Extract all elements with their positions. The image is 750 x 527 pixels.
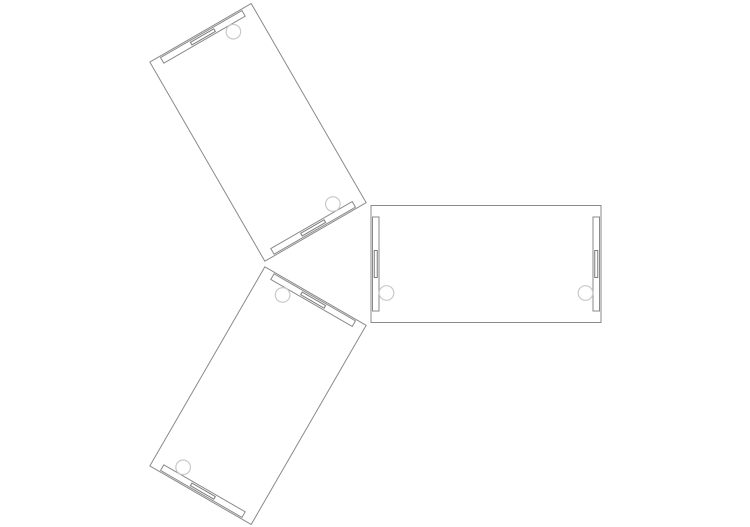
drawing-canvas	[0, 0, 750, 527]
grommet-circle	[323, 194, 343, 214]
cad-drawing	[0, 0, 750, 527]
grommet-circle	[578, 286, 593, 301]
desk-block-right	[371, 206, 601, 323]
grommet-circle	[273, 285, 293, 305]
desk-cluster	[150, 4, 601, 525]
outer-edge-strip	[161, 465, 246, 518]
outer-edge-strip	[161, 11, 246, 64]
outer-edge-strip	[593, 217, 600, 311]
inner-cable-slot	[374, 251, 377, 278]
inner-edge-strip	[271, 202, 356, 255]
inner-edge-strip	[373, 217, 380, 311]
grommet-circle	[223, 22, 243, 42]
grommet-circle	[379, 286, 394, 301]
desk-outline	[150, 4, 366, 262]
desk-outline	[371, 206, 601, 323]
inner-edge-strip	[271, 274, 356, 327]
desk-outline	[150, 267, 366, 525]
outer-cable-slot	[595, 251, 598, 278]
desk-block-upper-left	[150, 4, 366, 262]
grommet-circle	[173, 457, 193, 477]
desk-block-lower-left	[150, 267, 366, 525]
